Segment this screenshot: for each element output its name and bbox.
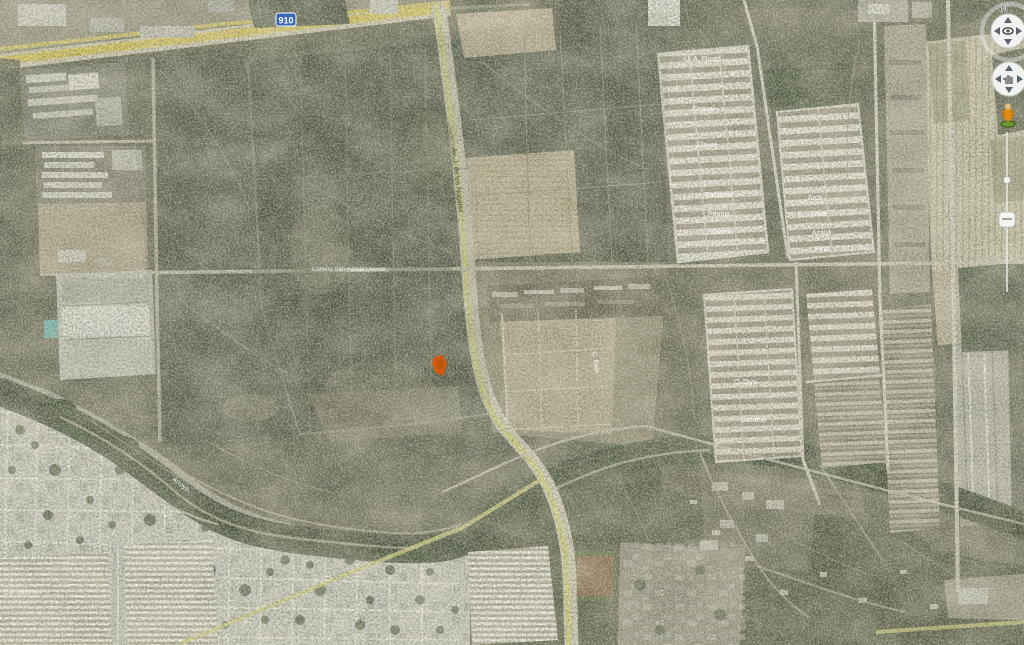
svg-text:Ll. A. Flores: Ll. A. Flores [684,56,721,63]
svg-text:Camino San Rafael Oriente: Camino San Rafael Oriente [312,267,386,273]
svg-text:Gazania: Gazania [740,417,766,424]
svg-text:Pino: Pino [815,246,829,253]
svg-text:Clavel: Clavel [697,142,717,149]
svg-text:Girasol: Girasol [692,106,715,113]
svg-text:Azalia: Azalia [812,230,831,237]
svg-text:Arce: Arce [808,195,823,202]
svg-text:Peonia: Peonia [708,211,730,218]
svg-text:C. Diyo: C. Diyo [734,379,757,386]
svg-text:Col. Jardines: Col. Jardines [4,589,43,596]
svg-text:Gardenia: Gardenia [704,192,733,199]
svg-text:N: N [1001,4,1008,14]
svg-text:Lava: Lava [811,211,826,218]
svg-text:910: 910 [278,16,293,26]
svg-text:Jazmin: Jazmin [711,229,733,236]
